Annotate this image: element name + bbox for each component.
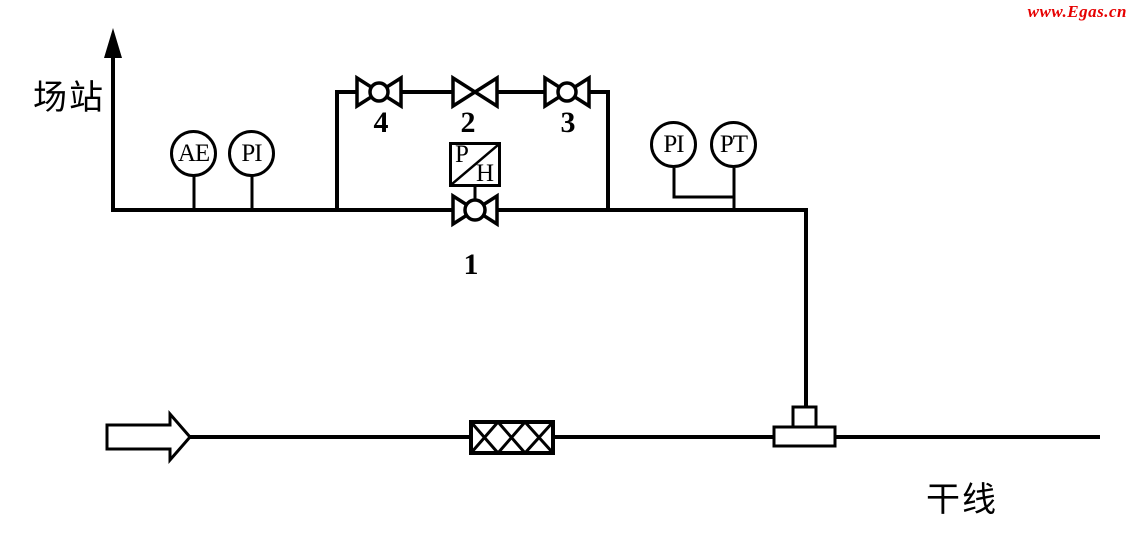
regulator-letter-p: P [455,141,469,169]
pid-diagram: www.Egas.cn 场站 干线 1 2 3 4 AE PI PI PT P … [0,0,1135,544]
trunk-label: 干线 [926,472,998,521]
station-arrow-icon [104,28,122,212]
instrument-pt: PT [710,121,757,168]
instrument-pt-label: PT [720,131,747,159]
diagram-canvas [0,0,1135,544]
valve-2-label: 2 [461,106,476,140]
station-label: 场站 [33,70,105,119]
valve-4-label: 4 [374,106,389,140]
instrument-pi-right-label: PI [663,131,683,159]
instrument-stem-pi-pt [674,168,734,212]
filter-icon [471,422,553,453]
instrument-pi-left-label: PI [241,140,261,168]
valve-3-label: 3 [561,106,576,140]
regulator-letter-h: H [476,160,494,188]
instrument-ae-label: AE [178,140,209,168]
tee-fitting-icon [774,407,835,446]
valve-1-label: 1 [464,248,479,282]
ball-valve-1-icon [453,196,497,224]
ball-valve-4-icon [357,78,401,106]
instrument-pi-left: PI [228,130,275,177]
gate-valve-2-icon [453,78,497,106]
instrument-ae: AE [170,130,217,177]
flow-arrow-icon [107,414,190,460]
watermark-text: www.Egas.cn [1028,2,1127,22]
instrument-pi-right: PI [650,121,697,168]
regulator-box: P H [449,142,501,187]
ball-valve-3-icon [545,78,589,106]
